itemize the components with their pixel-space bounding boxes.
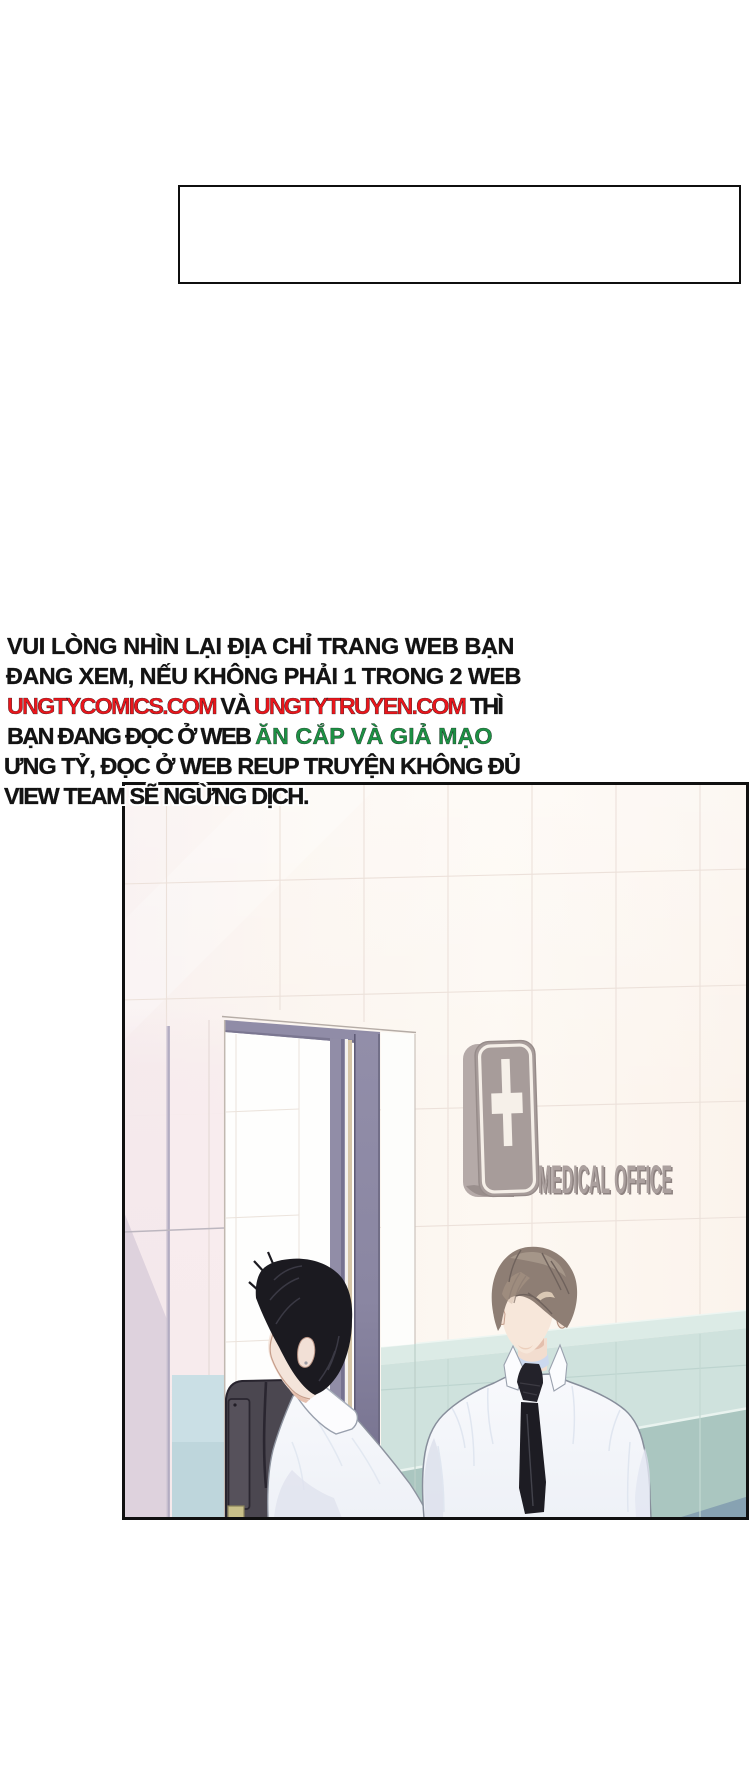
svg-text:MEDICAL OFFICE: MEDICAL OFFICE <box>538 1158 672 1202</box>
